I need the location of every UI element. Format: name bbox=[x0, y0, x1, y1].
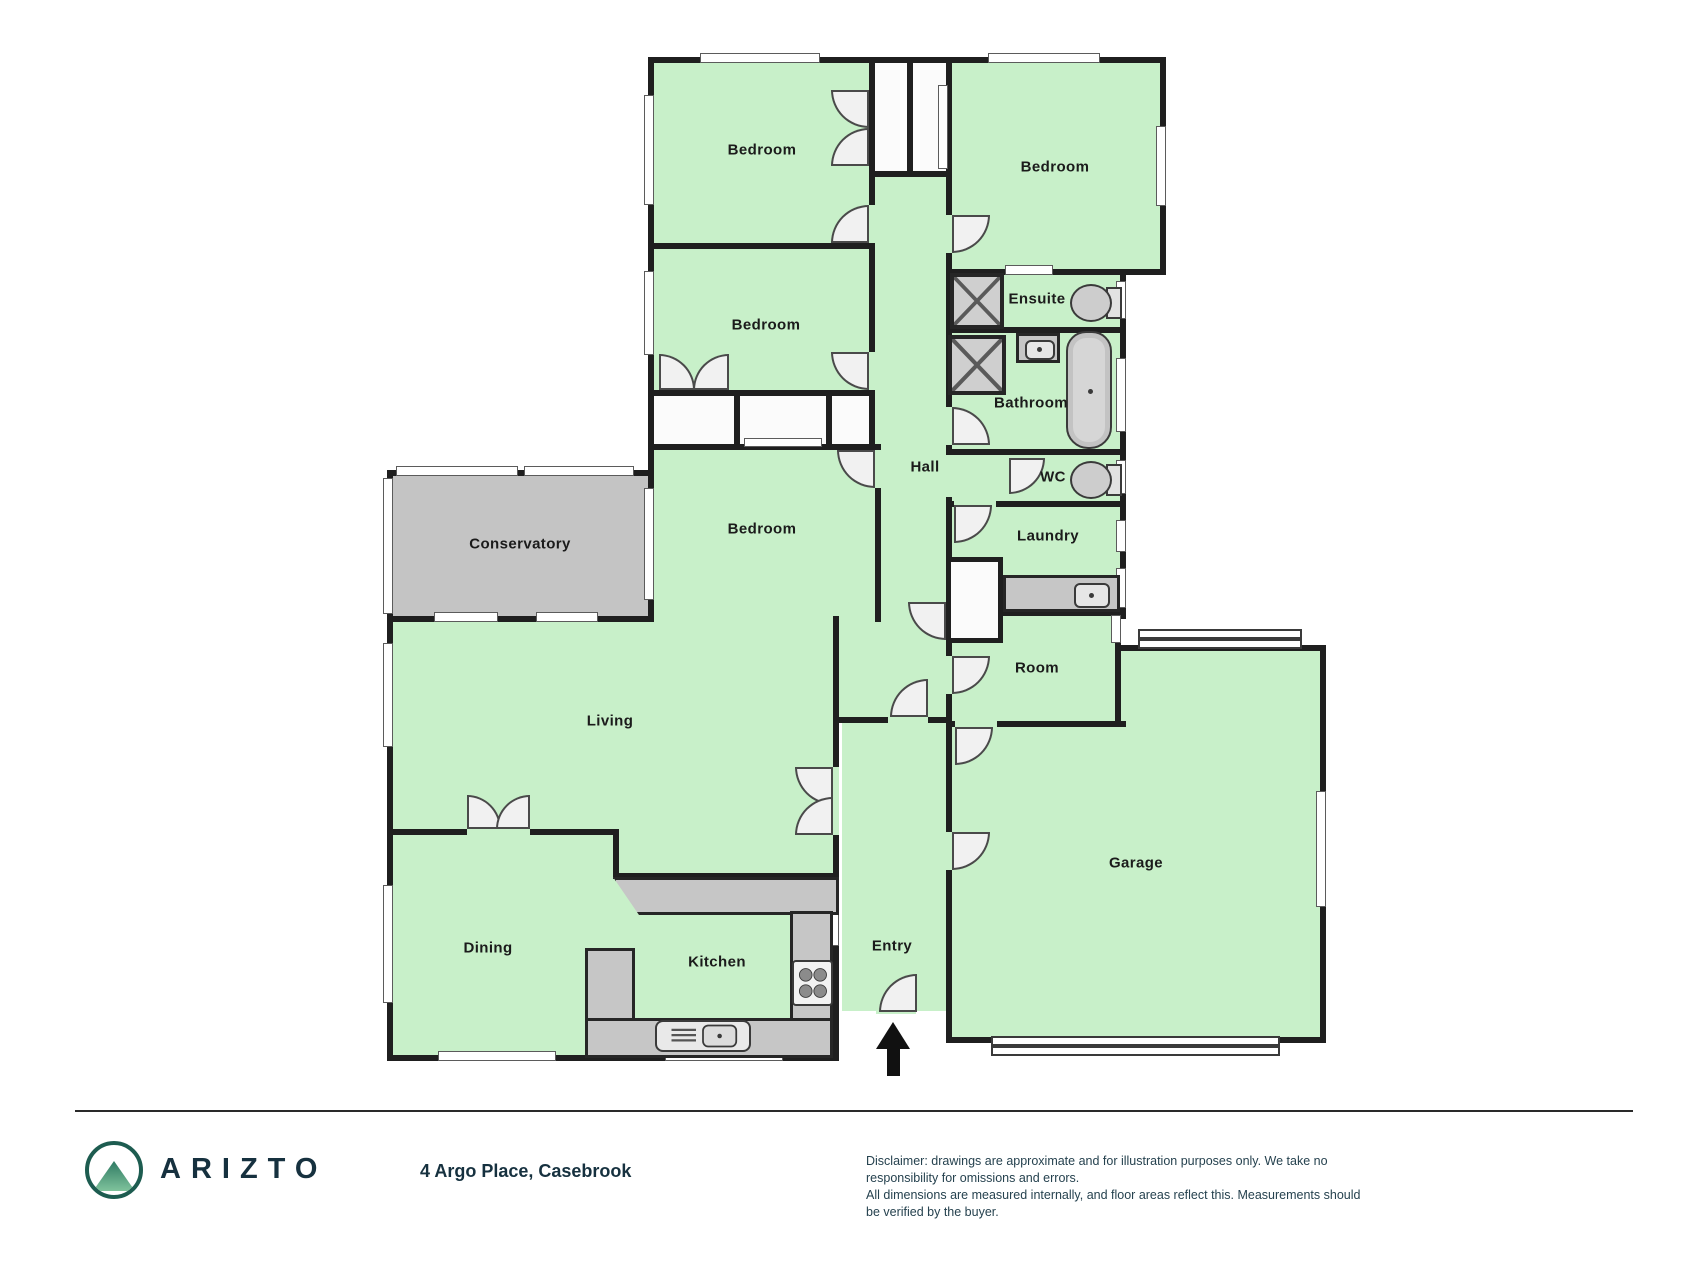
bathtub bbox=[1066, 331, 1112, 449]
sliding-door bbox=[744, 438, 822, 447]
door-opening bbox=[869, 352, 875, 390]
wall bbox=[648, 390, 875, 396]
room-label-laundry: Laundry bbox=[1017, 528, 1079, 545]
wall bbox=[907, 57, 913, 177]
room-label-conservatory: Conservatory bbox=[469, 536, 571, 553]
door-opening bbox=[875, 450, 881, 488]
window bbox=[524, 466, 634, 476]
wall bbox=[869, 57, 875, 450]
disclaimer-line-2: All dimensions are measured internally, … bbox=[866, 1188, 1360, 1219]
toilet-bowl bbox=[1070, 284, 1112, 322]
window bbox=[1156, 126, 1166, 206]
hall-closet bbox=[946, 557, 1003, 643]
room-label-dining: Dining bbox=[463, 940, 512, 957]
stove bbox=[792, 960, 833, 1006]
wall bbox=[734, 390, 740, 450]
window bbox=[1316, 791, 1326, 907]
room-label-wc: WC bbox=[1040, 469, 1066, 486]
laundry-counter bbox=[1003, 575, 1120, 612]
wall bbox=[648, 243, 875, 249]
room-label-bedroom-2: Bedroom bbox=[1021, 159, 1090, 176]
window bbox=[383, 478, 393, 614]
basin bbox=[1025, 340, 1055, 360]
entry-arrow-icon bbox=[876, 1022, 910, 1049]
property-address: 4 Argo Place, Casebrook bbox=[420, 1161, 631, 1182]
disclaimer-text: Disclaimer: drawings are approximate and… bbox=[866, 1153, 1376, 1221]
room-label-hall: Hall bbox=[910, 459, 939, 476]
drain-icon bbox=[1088, 389, 1093, 394]
wall bbox=[826, 390, 832, 450]
room-label-garage: Garage bbox=[1109, 855, 1163, 872]
shower-glass-icon bbox=[952, 339, 1002, 391]
shower bbox=[950, 273, 1004, 329]
hall-floor bbox=[872, 177, 949, 723]
wall bbox=[869, 171, 952, 177]
room-label-bedroom-4: Bedroom bbox=[728, 521, 797, 538]
window bbox=[536, 612, 598, 622]
entry-floor bbox=[842, 720, 949, 1011]
window bbox=[383, 885, 393, 1003]
hall-floor-wide bbox=[836, 619, 876, 723]
drain-icon bbox=[1089, 593, 1094, 598]
door-opening bbox=[869, 205, 875, 243]
kitchen-sink bbox=[655, 1020, 751, 1052]
toilet bbox=[1068, 460, 1120, 496]
room-label-bedroom-1: Bedroom bbox=[728, 142, 797, 159]
room-label-ensuite: Ensuite bbox=[1009, 291, 1066, 308]
room-label-entry: Entry bbox=[872, 938, 912, 955]
sliding-door bbox=[938, 85, 948, 169]
brand-name: ARIZTO bbox=[160, 1153, 327, 1186]
kitchen-counter-top bbox=[613, 877, 839, 915]
footer-divider bbox=[75, 1110, 1633, 1112]
room-label-kitchen: Kitchen bbox=[688, 954, 746, 971]
room-label-living: Living bbox=[587, 713, 634, 730]
wall bbox=[946, 1012, 952, 1043]
mountain-icon bbox=[93, 1161, 135, 1191]
floorplan-page: Bedroom Bedroom Bedroom Bedroom Conserva… bbox=[0, 0, 1707, 1280]
door-opening bbox=[833, 767, 839, 835]
room-label-room: Room bbox=[1015, 660, 1059, 677]
disclaimer-line-1: Disclaimer: drawings are approximate and… bbox=[866, 1154, 1328, 1185]
burners-icon bbox=[794, 962, 831, 1004]
window bbox=[644, 95, 654, 205]
sliding-door bbox=[1005, 265, 1053, 275]
door-opening bbox=[946, 455, 952, 497]
shower bbox=[948, 335, 1006, 395]
room-label-bedroom-3: Bedroom bbox=[732, 317, 801, 334]
window bbox=[1116, 358, 1126, 432]
window bbox=[644, 271, 654, 355]
garage-door bbox=[991, 1036, 1280, 1056]
garage-door bbox=[1138, 629, 1302, 649]
toilet-bowl bbox=[1070, 461, 1112, 499]
drain-icon bbox=[1037, 347, 1042, 352]
room-label-bathroom: Bathroom bbox=[994, 395, 1068, 412]
window bbox=[1116, 520, 1126, 552]
laundry-tub bbox=[1074, 583, 1110, 608]
sink-drainer-icon bbox=[657, 1022, 749, 1050]
window bbox=[988, 53, 1100, 63]
wall bbox=[387, 616, 654, 622]
door-opening bbox=[467, 829, 530, 835]
window bbox=[434, 612, 498, 622]
window bbox=[438, 1051, 556, 1061]
wall bbox=[946, 449, 1126, 455]
entry-arrow-icon bbox=[887, 1049, 900, 1076]
window bbox=[396, 466, 518, 476]
window bbox=[644, 488, 654, 600]
wall bbox=[613, 829, 619, 879]
exterior-door bbox=[1111, 615, 1121, 643]
arizto-logo-icon bbox=[85, 1141, 143, 1199]
window bbox=[700, 53, 820, 63]
wall bbox=[833, 616, 839, 1061]
shower-glass-icon bbox=[954, 277, 1000, 325]
toilet bbox=[1068, 283, 1120, 319]
door-opening bbox=[888, 717, 928, 723]
window bbox=[383, 643, 393, 747]
vanity-counter bbox=[1016, 333, 1060, 363]
